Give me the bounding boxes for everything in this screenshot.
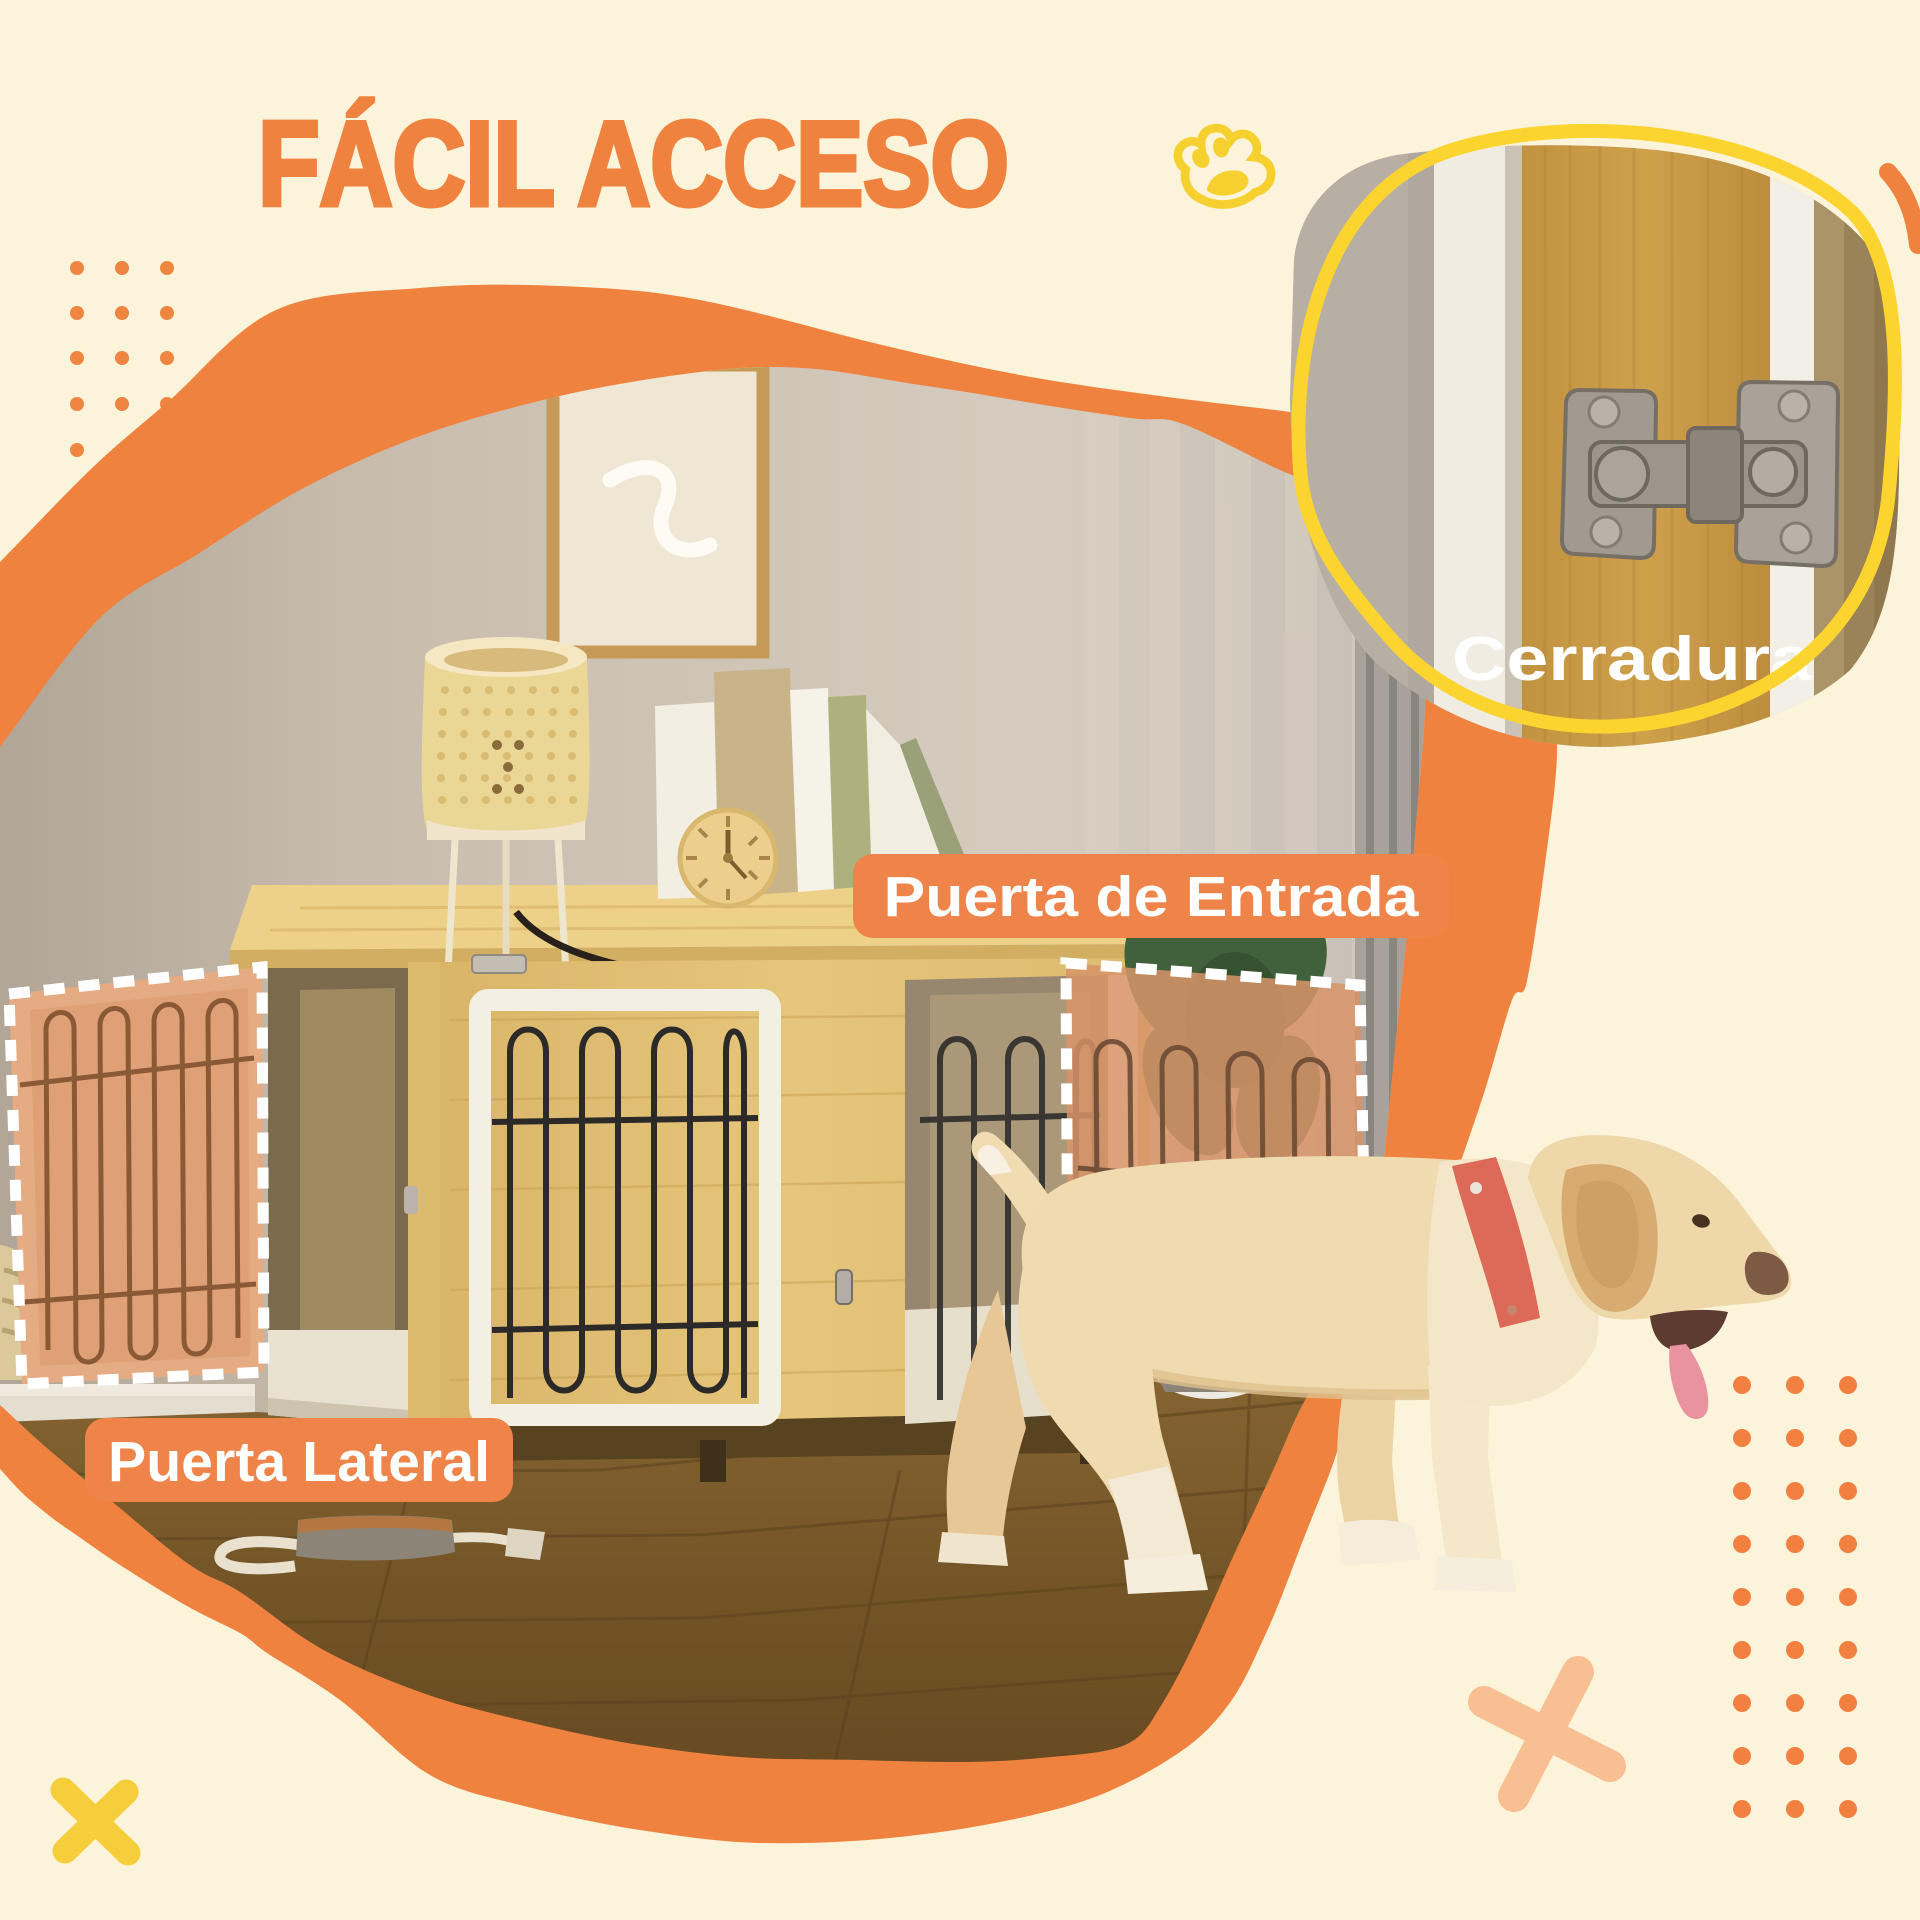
svg-text:FÁCIL ACCESO: FÁCIL ACCESO (258, 97, 1009, 231)
svg-text:Puerta de Entrada: Puerta de Entrada (884, 865, 1420, 929)
svg-text:Puerta Lateral: Puerta Lateral (108, 1430, 490, 1494)
